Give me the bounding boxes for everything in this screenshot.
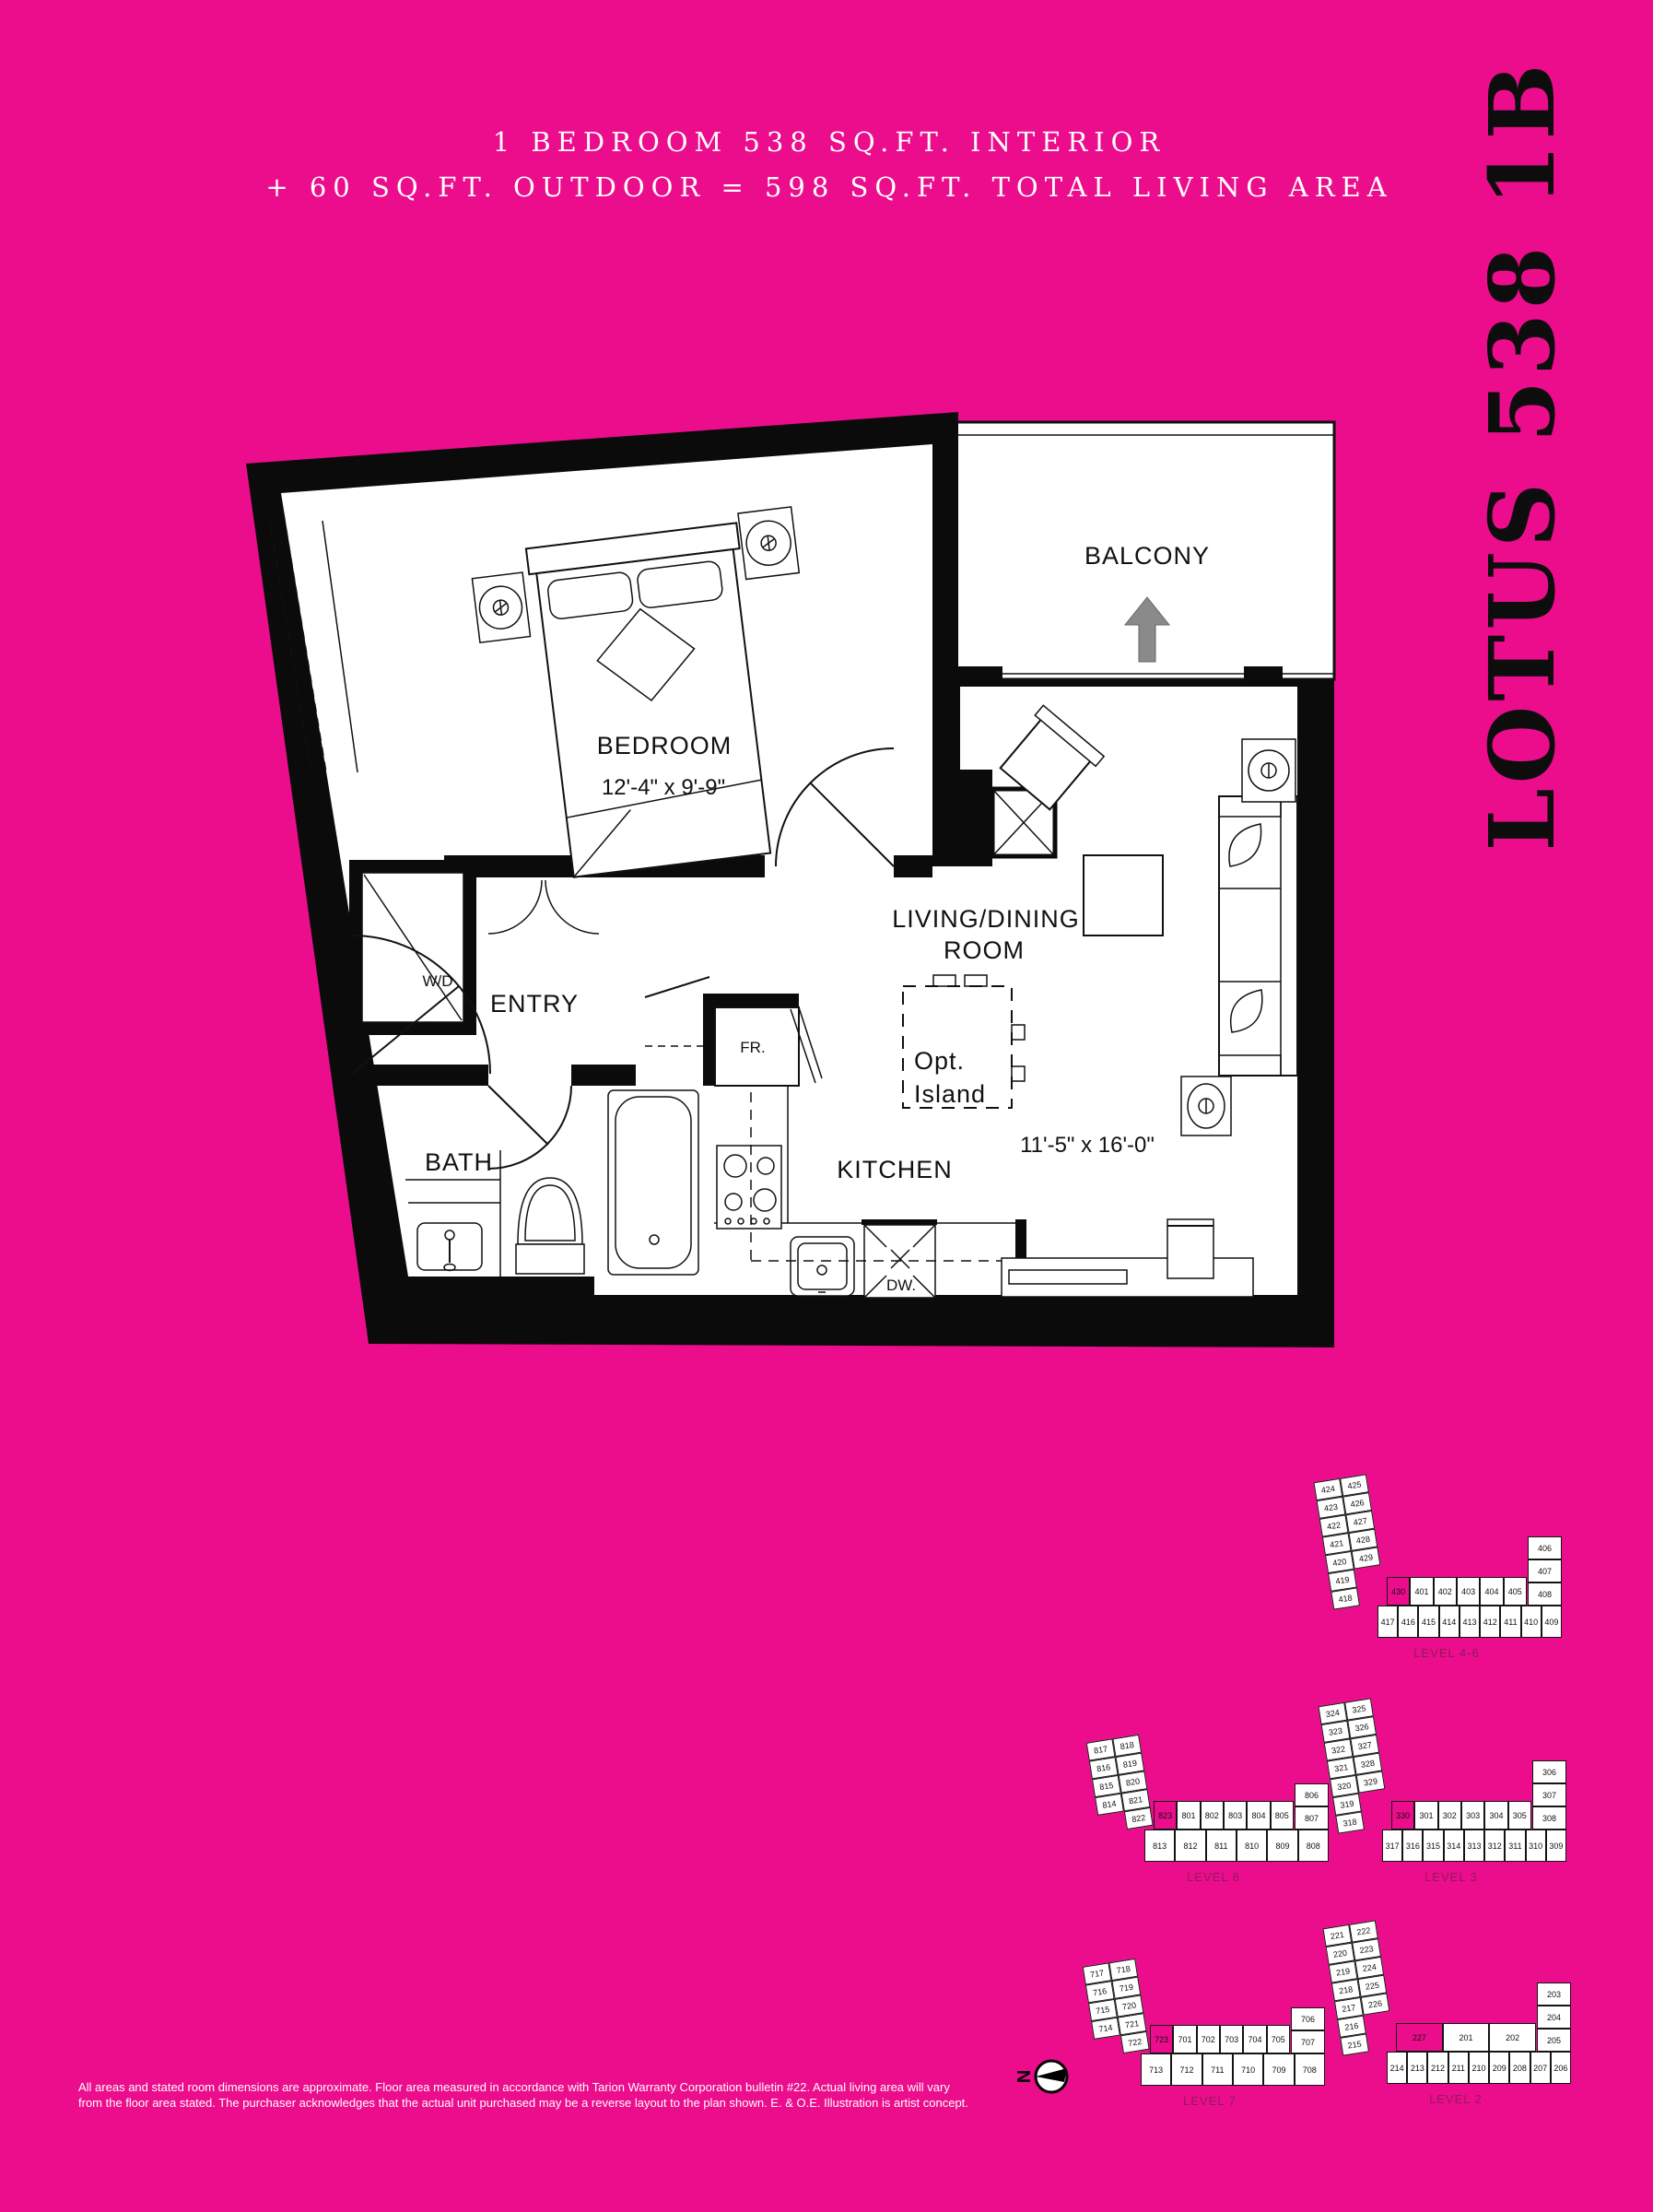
keyplan-unit: 207 bbox=[1530, 2052, 1551, 2084]
keyplan-row-top: 227201202 bbox=[1396, 2023, 1536, 2052]
bathtub bbox=[608, 1090, 698, 1275]
keyplan-row-top: 823801802803804805 bbox=[1154, 1801, 1294, 1830]
keyplan-unit: 811 bbox=[1206, 1830, 1237, 1862]
cooktop bbox=[717, 1146, 781, 1229]
keyplan-wing: 424425423426422427421428420429419418 bbox=[1313, 1474, 1388, 1610]
keyplan-unit: 404 bbox=[1480, 1577, 1503, 1606]
balcony-label: BALCONY bbox=[1084, 542, 1210, 570]
keyplan-unit: 401 bbox=[1410, 1577, 1433, 1606]
keyplan-unit: 203 bbox=[1537, 1983, 1571, 2006]
keyplan-unit: 411 bbox=[1500, 1606, 1520, 1638]
keyplan-unit: 704 bbox=[1243, 2025, 1266, 2053]
keyplan-unit: 702 bbox=[1197, 2025, 1220, 2053]
header-line2: + 60 SQ.FT. OUTDOOR = 598 SQ.FT. TOTAL L… bbox=[230, 165, 1428, 210]
keyplan-unit: 701 bbox=[1173, 2025, 1196, 2053]
keyplan-building: 2212222202232192242182252172262162152272… bbox=[1341, 1913, 1571, 2088]
keyplan-unit: 416 bbox=[1398, 1606, 1418, 1638]
keyplan-stack: 306307308 bbox=[1532, 1760, 1566, 1830]
keyplan-unit: 710 bbox=[1233, 2053, 1263, 2086]
keyplan-unit: 313 bbox=[1464, 1830, 1484, 1862]
keyplan-building: 8178188168198158208148218228238018028038… bbox=[1098, 1691, 1329, 1866]
keyplan-level-8: 8178188168198158208148218228238018028038… bbox=[1098, 1691, 1329, 1889]
keyplan-spacer bbox=[1366, 2030, 1396, 2052]
keyplan-row-bottom: 317316315314313312311310309 bbox=[1382, 1830, 1566, 1862]
bedroom-label: BEDROOM bbox=[597, 732, 733, 759]
keyplan-unit: 706 bbox=[1291, 2007, 1325, 2030]
disclaimer-line2: from the floor area stated. The purchase… bbox=[78, 2095, 1027, 2111]
bath-label: BATH bbox=[425, 1148, 493, 1176]
keyplan-unit: 406 bbox=[1528, 1536, 1562, 1559]
keyplan-row-top: 723701702703704705 bbox=[1150, 2025, 1290, 2053]
balcony-area: BALCONY bbox=[949, 422, 1334, 679]
keyplan-wing: 817818816819815820814821822 bbox=[1086, 1735, 1155, 1834]
keyplan-unit: 808 bbox=[1298, 1830, 1329, 1862]
keyplan-unit: 813 bbox=[1144, 1830, 1175, 1862]
keyplan-unit: 314 bbox=[1444, 1830, 1464, 1862]
keyplan-unit: 304 bbox=[1484, 1801, 1507, 1830]
washer-dryer-closet: W/D bbox=[349, 860, 476, 1035]
keyplan-unit: 709 bbox=[1263, 2053, 1294, 2086]
keyplan-unit: 206 bbox=[1551, 2052, 1571, 2084]
keyplan-unit: 405 bbox=[1504, 1577, 1527, 1606]
keyplan-unit: 307 bbox=[1532, 1783, 1566, 1806]
keyplan-building: 7177187167197157207147217227237017027037… bbox=[1095, 1915, 1325, 2090]
keyplan-unit: 711 bbox=[1202, 2053, 1233, 2086]
nightstand-right bbox=[738, 507, 799, 580]
keyplan-wing: 324325323326322327321328320329319318 bbox=[1318, 1698, 1392, 1834]
keyplan-caption: LEVEL 3 bbox=[1336, 1870, 1566, 1884]
keyplan-unit: 713 bbox=[1141, 2053, 1171, 2086]
dishwasher-label: DW. bbox=[886, 1277, 916, 1294]
keyplan-unit: 418 bbox=[1331, 1587, 1360, 1609]
sofa bbox=[1219, 796, 1297, 1076]
keyplan-unit: 204 bbox=[1537, 2006, 1571, 2029]
keyplan-unit: 309 bbox=[1546, 1830, 1566, 1862]
keyplan-unit: 803 bbox=[1224, 1801, 1247, 1830]
keyplan-unit: 312 bbox=[1484, 1830, 1505, 1862]
plan-title-vertical: LOTUS 538 1B bbox=[1470, 59, 1575, 851]
keyplan-unit: 317 bbox=[1382, 1830, 1402, 1862]
keyplan-unit: 305 bbox=[1508, 1801, 1531, 1830]
bedroom-dim: 12'-4" x 9'-9" bbox=[602, 775, 725, 800]
island-label-2: Island bbox=[914, 1080, 986, 1108]
keyplan-unit: 809 bbox=[1267, 1830, 1297, 1862]
keyplan-unit-highlighted: 430 bbox=[1387, 1577, 1410, 1606]
keyplan-unit: 403 bbox=[1457, 1577, 1480, 1606]
keyplan-unit: 407 bbox=[1528, 1559, 1562, 1583]
keyplan-caption: LEVEL 7 bbox=[1095, 2094, 1325, 2108]
living-label-1: LIVING/DINING bbox=[892, 905, 1080, 933]
keyplan-level-3: 3243253233263223273213283203293193183303… bbox=[1336, 1691, 1566, 1889]
fridge-label: FR. bbox=[740, 1039, 765, 1056]
keyplan-level-2: 2212222202232192242182252172262162152272… bbox=[1341, 1913, 1571, 2112]
keyplan-level-4-6: 4244254234264224274214284204294194184304… bbox=[1331, 1467, 1562, 1665]
keyplan-unit: 822 bbox=[1124, 1807, 1154, 1830]
keyplan-row-bottom: 417416415414413412411410409 bbox=[1377, 1606, 1562, 1638]
keyplan-unit: 315 bbox=[1423, 1830, 1443, 1862]
keyplan-row-bottom: 713712711710709708 bbox=[1141, 2053, 1325, 2086]
living-label-2: ROOM bbox=[944, 936, 1025, 964]
keyplan-building: 3243253233263223273213283203293193183303… bbox=[1336, 1691, 1566, 1866]
kitchen-sink bbox=[791, 1237, 854, 1296]
keyplan-unit-highlighted: 823 bbox=[1154, 1801, 1177, 1830]
keyplan-spacer bbox=[1094, 2035, 1123, 2057]
dishwasher: DW. bbox=[862, 1219, 937, 1298]
keyplan-unit: 708 bbox=[1295, 2053, 1325, 2086]
keyplan-unit: 306 bbox=[1532, 1760, 1566, 1783]
keyplan-unit: 802 bbox=[1201, 1801, 1224, 1830]
side-table-top bbox=[1242, 739, 1295, 802]
floorplan-svg: BALCONY bbox=[212, 387, 1354, 1373]
keyplan-row-bottom: 214213212211210209208207206 bbox=[1387, 2052, 1571, 2084]
keyplan-unit-highlighted: 330 bbox=[1391, 1801, 1414, 1830]
island-label-1: Opt. bbox=[914, 1047, 965, 1075]
keyplan-unit: 805 bbox=[1271, 1801, 1294, 1830]
keyplan-unit: 214 bbox=[1387, 2052, 1407, 2084]
kitchen-label: KITCHEN bbox=[837, 1156, 953, 1183]
keyplan-unit: 202 bbox=[1489, 2023, 1536, 2052]
keyplan-unit: 804 bbox=[1247, 1801, 1270, 1830]
keyplan-unit: 712 bbox=[1171, 2053, 1202, 2086]
keyplan-wing: 717718716719715720714721722 bbox=[1083, 1959, 1152, 2058]
keyplan-unit: 308 bbox=[1532, 1806, 1566, 1830]
keyplan-unit: 707 bbox=[1291, 2030, 1325, 2053]
keyplan-unit: 402 bbox=[1434, 1577, 1457, 1606]
keyplan-building: 4244254234264224274214284204294194184304… bbox=[1331, 1467, 1562, 1642]
keyplan-unit: 318 bbox=[1335, 1811, 1365, 1833]
keyplan-unit: 412 bbox=[1480, 1606, 1500, 1638]
side-table-bottom bbox=[1167, 1219, 1213, 1278]
keyplan-unit: 211 bbox=[1448, 2052, 1469, 2084]
lamp-table-bottom bbox=[1181, 1077, 1231, 1135]
page-header: 1 BEDROOM 538 SQ.FT. INTERIOR + 60 SQ.FT… bbox=[230, 120, 1428, 210]
keyplan-unit: 810 bbox=[1237, 1830, 1267, 1862]
keyplan-spacer bbox=[1362, 1807, 1391, 1830]
keyplan-unit: 310 bbox=[1526, 1830, 1546, 1862]
keyplan-caption: LEVEL 4-6 bbox=[1331, 1646, 1562, 1660]
keyplan-unit: 301 bbox=[1414, 1801, 1437, 1830]
keyplan-level-7: 7177187167197157207147217227237017027037… bbox=[1095, 1915, 1325, 2113]
nightstand-left bbox=[472, 572, 530, 642]
keyplan-unit: 302 bbox=[1438, 1801, 1461, 1830]
coffee-table bbox=[1084, 855, 1163, 935]
keyplan-unit: 415 bbox=[1418, 1606, 1438, 1638]
keyplan-unit-highlighted: 723 bbox=[1150, 2025, 1173, 2053]
keyplan-stack: 806807 bbox=[1295, 1783, 1329, 1830]
keyplan-unit: 303 bbox=[1461, 1801, 1484, 1830]
keyplan-unit: 812 bbox=[1175, 1830, 1205, 1862]
keyplan-spacer bbox=[1097, 1811, 1127, 1833]
keyplan-wing: 221222220223219224218225217226216215 bbox=[1322, 1920, 1397, 2056]
keyplan-stack: 706707 bbox=[1291, 2007, 1325, 2053]
keyplan-unit: 410 bbox=[1521, 1606, 1542, 1638]
keyplan-unit: 807 bbox=[1295, 1806, 1329, 1830]
keyplan-caption: LEVEL 2 bbox=[1341, 2092, 1571, 2106]
keyplan-unit: 311 bbox=[1505, 1830, 1525, 1862]
living-dim: 11'-5" x 16'-0" bbox=[1020, 1133, 1155, 1158]
bath-sink bbox=[417, 1223, 482, 1271]
keyplan-unit: 417 bbox=[1377, 1606, 1398, 1638]
keyplan-unit: 413 bbox=[1460, 1606, 1480, 1638]
keyplan-row-top: 430401402403404405 bbox=[1387, 1577, 1527, 1606]
header-line1: 1 BEDROOM 538 SQ.FT. INTERIOR bbox=[230, 120, 1428, 165]
keyplan-unit: 208 bbox=[1509, 2052, 1530, 2084]
keyplan-unit: 409 bbox=[1542, 1606, 1562, 1638]
entry-label: ENTRY bbox=[490, 990, 579, 1018]
keyplan-unit: 212 bbox=[1427, 2052, 1448, 2084]
keyplan-row-top: 330301302303304305 bbox=[1391, 1801, 1531, 1830]
keyplan-unit: 703 bbox=[1220, 2025, 1243, 2053]
keyplan-stack: 203204205 bbox=[1537, 1983, 1571, 2052]
keyplan-unit: 801 bbox=[1177, 1801, 1200, 1830]
disclaimer-line1: All areas and stated room dimensions are… bbox=[78, 2079, 1027, 2095]
keyplan-stack: 406407408 bbox=[1528, 1536, 1562, 1606]
keyplan-unit-highlighted: 227 bbox=[1396, 2023, 1443, 2052]
keyplan-unit: 806 bbox=[1295, 1783, 1329, 1806]
keyplan-unit: 215 bbox=[1340, 2033, 1369, 2055]
keyplan-unit: 210 bbox=[1469, 2052, 1489, 2084]
keyplan-row-bottom: 813812811810809808 bbox=[1144, 1830, 1329, 1862]
keyplan-unit: 201 bbox=[1443, 2023, 1490, 2052]
media-console bbox=[1002, 1258, 1253, 1297]
keyplan-unit: 408 bbox=[1528, 1583, 1562, 1606]
keyplan-unit: 205 bbox=[1537, 2029, 1571, 2052]
keyplan-unit: 705 bbox=[1267, 2025, 1290, 2053]
keyplan-caption: LEVEL 8 bbox=[1098, 1870, 1329, 1884]
keyplan-unit: 722 bbox=[1120, 2031, 1150, 2053]
keyplan-unit: 414 bbox=[1439, 1606, 1460, 1638]
disclaimer: All areas and stated room dimensions are… bbox=[78, 2079, 1027, 2111]
keyplan-unit: 213 bbox=[1407, 2052, 1427, 2084]
keyplan-unit: 316 bbox=[1402, 1830, 1423, 1862]
keyplan-spacer bbox=[1357, 1583, 1387, 1606]
keyplan-unit: 209 bbox=[1489, 2052, 1509, 2084]
